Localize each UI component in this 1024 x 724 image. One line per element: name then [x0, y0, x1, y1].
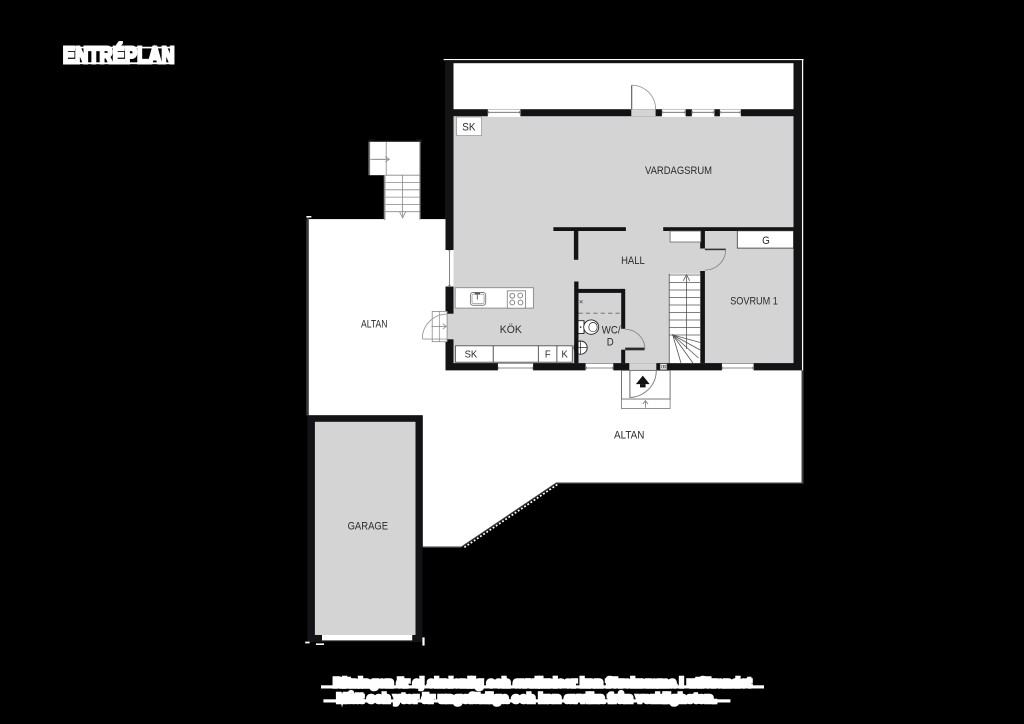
svg-text:ENTRÉPLAN: ENTRÉPLAN [63, 43, 175, 69]
svg-text:Mått och ytor är ungefärliga o: Mått och ytor är ungefärliga och kan avv… [337, 692, 717, 706]
svg-text:ALTAN: ALTAN [361, 318, 387, 330]
svg-text:SOVRUM 1: SOVRUM 1 [730, 296, 778, 308]
svg-text:WC/: WC/ [602, 325, 621, 337]
svg-text:F: F [545, 349, 551, 361]
svg-text:G: G [762, 236, 770, 248]
svg-text:VARDAGSRUM: VARDAGSRUM [645, 165, 712, 177]
svg-text:GARAGE: GARAGE [348, 521, 389, 533]
svg-text:SK: SK [462, 122, 475, 134]
svg-text:Ritningen är ej skalenlig och: Ritningen är ej skalenlig och avvikelser… [334, 676, 753, 690]
svg-text:SK: SK [465, 349, 478, 361]
svg-text:D: D [607, 337, 614, 349]
svg-text:KÖK: KÖK [500, 324, 523, 336]
svg-text:HALL: HALL [621, 256, 645, 268]
svg-text:ALTAN: ALTAN [614, 430, 644, 442]
svg-text:K: K [562, 349, 569, 361]
